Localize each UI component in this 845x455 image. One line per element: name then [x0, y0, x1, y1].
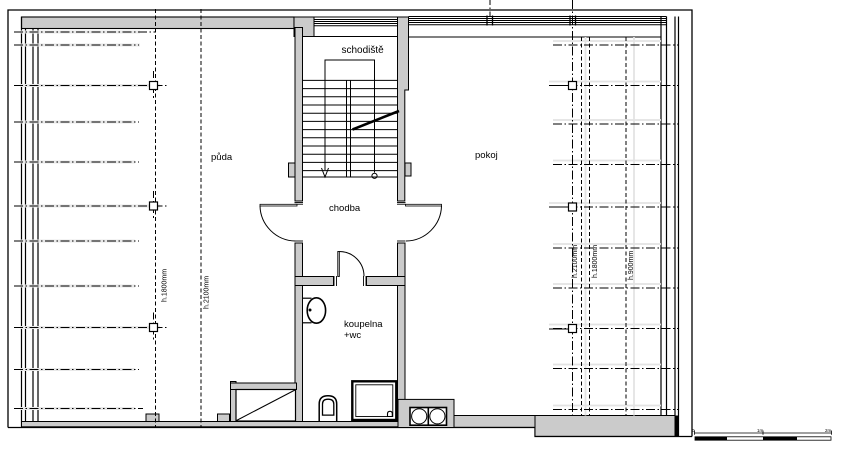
- svg-text:pokoj: pokoj: [475, 150, 498, 161]
- svg-text:+wc: +wc: [344, 330, 361, 341]
- svg-text:h.2100mm: h.2100mm: [572, 245, 579, 278]
- svg-text:h.900mm: h.900mm: [628, 251, 635, 280]
- svg-text:chodba: chodba: [329, 203, 361, 214]
- svg-text:h.2100mm: h.2100mm: [204, 276, 211, 309]
- svg-text:schodiště: schodiště: [342, 45, 385, 56]
- svg-text:1m: 1m: [757, 428, 764, 433]
- svg-text:2m: 2m: [825, 428, 832, 433]
- svg-text:půda: půda: [211, 152, 233, 163]
- svg-text:koupelna: koupelna: [344, 319, 383, 330]
- svg-text:h.1800mm: h.1800mm: [162, 269, 169, 302]
- svg-text:h.1800mm: h.1800mm: [592, 245, 599, 278]
